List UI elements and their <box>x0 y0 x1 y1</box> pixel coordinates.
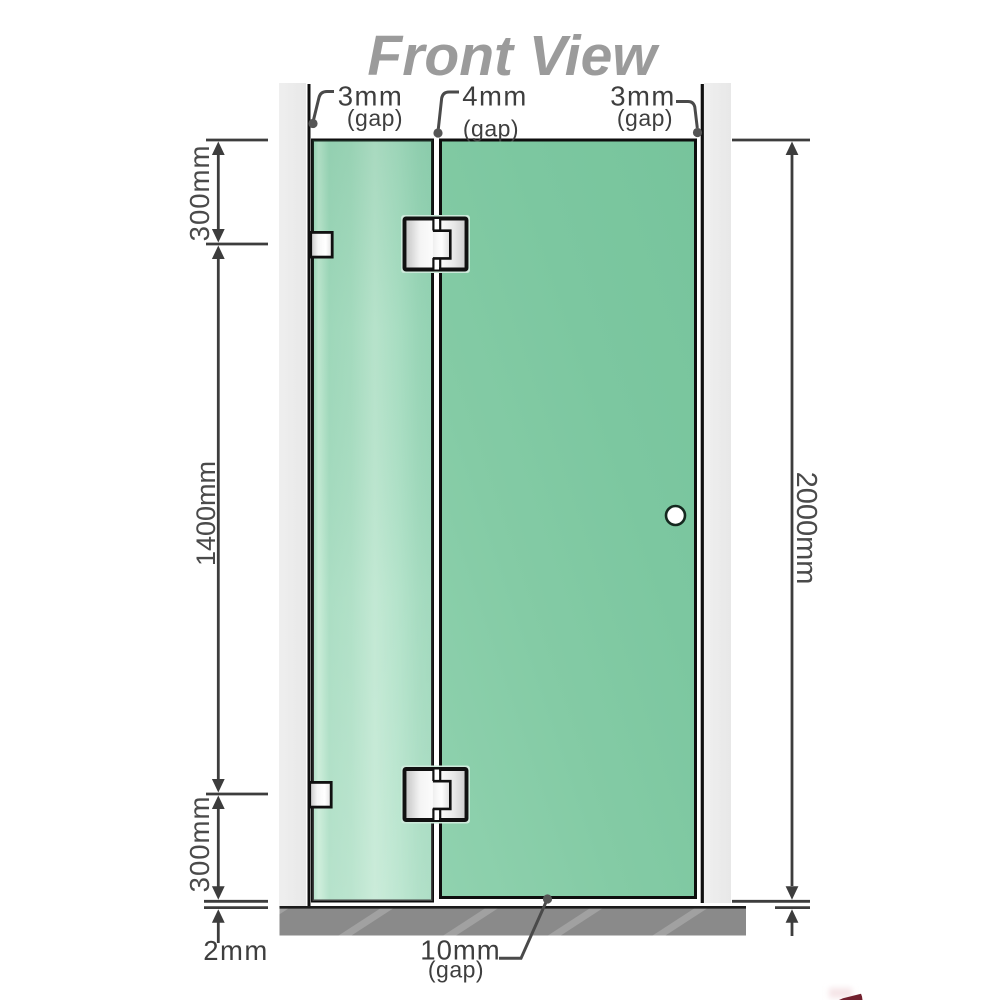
svg-text:300mm: 300mm <box>184 145 215 242</box>
svg-text:(gap): (gap) <box>347 105 403 131</box>
svg-text:2000mm: 2000mm <box>790 472 822 585</box>
svg-text:300mm: 300mm <box>184 796 215 893</box>
svg-text:(gap): (gap) <box>428 957 484 983</box>
svg-text:Front View: Front View <box>367 24 660 88</box>
svg-text:2mm: 2mm <box>203 935 269 966</box>
svg-text:4mm: 4mm <box>462 81 528 112</box>
svg-text:1400mm: 1400mm <box>191 461 221 566</box>
svg-text:(gap): (gap) <box>463 116 519 142</box>
svg-text:(gap): (gap) <box>617 105 673 131</box>
